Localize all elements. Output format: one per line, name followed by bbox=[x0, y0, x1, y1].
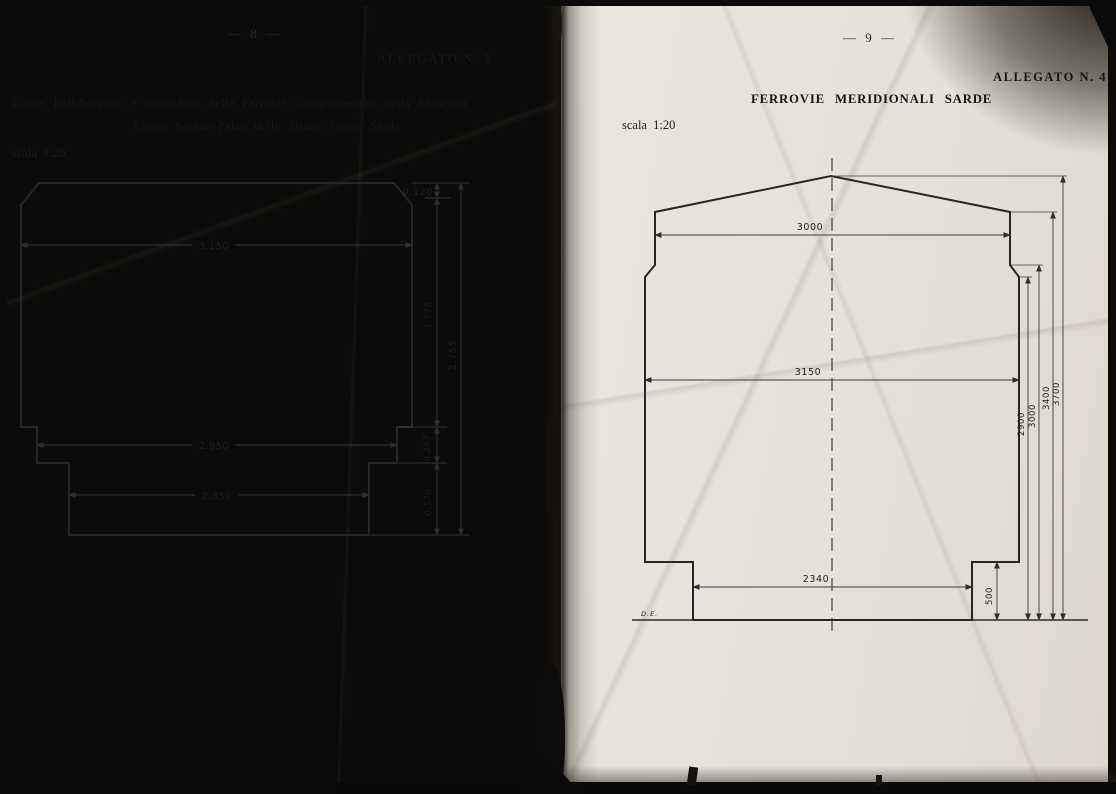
scan-edge-top bbox=[0, 0, 1116, 6]
scan-edge-mark bbox=[876, 775, 882, 785]
line-description-1: Linee: Isili-Sorgono e Nurri-Seui delle … bbox=[12, 96, 508, 111]
scale-label-left: scala 1:20 bbox=[12, 146, 65, 161]
page-number-left: — 8 — bbox=[228, 26, 282, 42]
loading-gauge-diagram-right: 3000 3150 2340 500 2900 3000 3400 bbox=[598, 150, 1100, 650]
dimension-heights-right: 2900 3000 3400 3700 bbox=[1017, 176, 1063, 620]
page-right: — 9 — ALLEGATO N. 4 FERROVIE MERIDIONALI… bbox=[561, 4, 1108, 787]
dimension-width-bottom: 2.350 bbox=[69, 491, 369, 502]
svg-text:2340: 2340 bbox=[803, 574, 830, 585]
gutter-ink-blob bbox=[553, 6, 562, 42]
svg-text:2.950: 2.950 bbox=[199, 441, 229, 452]
dimension-foot-height: 500 bbox=[985, 562, 997, 620]
scale-label-right: scala 1:20 bbox=[622, 118, 675, 133]
svg-text:3000: 3000 bbox=[1028, 404, 1038, 428]
line-description-2: Linea: Sassari-Palau delle Strade Ferate… bbox=[87, 119, 447, 134]
allegato-label-right: ALLEGATO N. 4 bbox=[961, 70, 1107, 85]
svg-text:3.150: 3.150 bbox=[199, 241, 229, 252]
draftsman-initials: D.E. bbox=[641, 610, 658, 618]
page-bottom-shadow bbox=[560, 766, 1116, 782]
scanned-book-spread: — 8 — ALLEGATO N. 3 Linee: Isili-Sorgono… bbox=[0, 0, 1116, 794]
dimension-width-mid: 2.950 bbox=[37, 441, 397, 452]
svg-text:3150: 3150 bbox=[795, 367, 822, 378]
loading-gauge-diagram-left: 3.150 2.950 2.350 0.120 1.778 0.287 bbox=[9, 165, 509, 555]
scan-edge-bottom-left bbox=[0, 778, 335, 794]
scan-edge-left bbox=[0, 0, 7, 794]
svg-text:0.120: 0.120 bbox=[403, 187, 433, 198]
svg-text:500: 500 bbox=[985, 587, 995, 605]
svg-text:2.755: 2.755 bbox=[448, 340, 459, 370]
extension-lines-right bbox=[831, 176, 1067, 277]
svg-text:3400: 3400 bbox=[1042, 386, 1052, 410]
allegato-label-left: ALLEGATO N. 3 bbox=[299, 52, 491, 67]
dimension-width-top: 3.150 bbox=[21, 241, 412, 252]
gutter-ink-blob bbox=[546, 408, 559, 524]
svg-text:1.778: 1.778 bbox=[424, 301, 434, 328]
svg-text:2.350: 2.350 bbox=[202, 491, 232, 502]
gauge-profile-outline-left bbox=[21, 183, 412, 535]
page-title-right: FERROVIE MERIDIONALI SARDE bbox=[751, 92, 981, 107]
svg-text:3000: 3000 bbox=[797, 222, 824, 233]
page-number-right: — 9 — bbox=[843, 30, 897, 46]
svg-text:3700: 3700 bbox=[1052, 382, 1062, 406]
svg-text:0.287: 0.287 bbox=[423, 434, 433, 461]
svg-text:2900: 2900 bbox=[1017, 412, 1027, 436]
svg-text:0.570: 0.570 bbox=[424, 488, 434, 515]
page-left: — 8 — ALLEGATO N. 3 Linee: Isili-Sorgono… bbox=[7, 6, 555, 783]
